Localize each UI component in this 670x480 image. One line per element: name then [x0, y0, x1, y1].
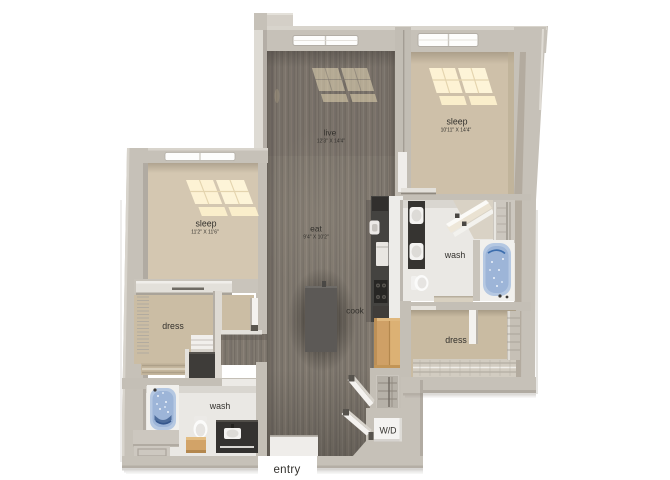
svg-text:cook: cook — [346, 306, 365, 316]
svg-text:dress: dress — [162, 321, 184, 331]
svg-text:11'2" X 11'6": 11'2" X 11'6" — [191, 230, 219, 236]
svg-text:eat: eat — [310, 224, 322, 234]
svg-text:sleep: sleep — [446, 117, 467, 127]
svg-text:live: live — [324, 128, 337, 138]
svg-text:sleep: sleep — [195, 219, 216, 229]
svg-text:wash: wash — [444, 250, 466, 260]
svg-text:dress: dress — [445, 335, 467, 345]
svg-text:12'3" X 14'4": 12'3" X 14'4" — [317, 139, 345, 145]
svg-text:10'11" X 14'4": 10'11" X 14'4" — [441, 128, 472, 134]
svg-text:9'4" X 10'2": 9'4" X 10'2" — [303, 235, 329, 241]
svg-text:entry: entry — [273, 464, 300, 476]
svg-text:W/D: W/D — [379, 426, 396, 436]
svg-text:wash: wash — [209, 401, 231, 411]
